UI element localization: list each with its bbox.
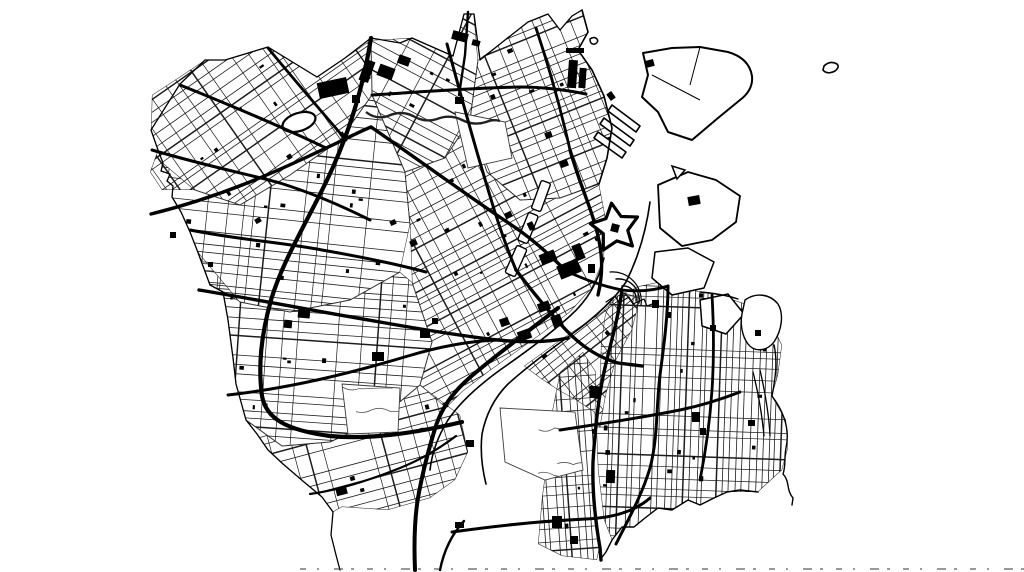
building-block — [606, 470, 615, 483]
building-block — [389, 219, 397, 226]
island-leaf — [823, 62, 838, 72]
building-block — [755, 330, 761, 336]
building-block — [466, 440, 474, 447]
building-block — [692, 412, 700, 422]
islet-north — [590, 38, 598, 45]
building-block — [499, 317, 510, 328]
building-block — [372, 352, 384, 361]
building-block — [652, 300, 659, 308]
building-block — [571, 243, 585, 261]
building-block — [748, 420, 755, 426]
building-block — [284, 320, 293, 329]
building-block — [170, 232, 176, 238]
building-block — [578, 68, 586, 88]
map-layers — [54, 0, 1024, 572]
building-block — [700, 428, 706, 435]
nordhavn — [642, 47, 752, 140]
building-block — [397, 54, 411, 67]
building-block — [606, 91, 616, 101]
map-canvas — [0, 0, 1024, 572]
ne-coastline — [578, 10, 612, 184]
building-block — [254, 217, 262, 224]
building-block — [208, 262, 213, 267]
building-block — [432, 318, 438, 324]
amager-south-edge — [600, 490, 758, 560]
road-west-radial — [190, 230, 426, 272]
road-motorway-ramp — [440, 521, 464, 570]
building-block — [588, 264, 595, 273]
building-block — [567, 60, 578, 89]
pond — [280, 108, 318, 136]
map-viewport — [0, 0, 1024, 572]
building-block — [376, 64, 395, 81]
building-block — [409, 239, 418, 247]
road-top-spike-road — [459, 12, 468, 95]
building-block — [504, 211, 513, 219]
refshaleoen — [658, 172, 740, 246]
building-block — [566, 48, 584, 53]
strand-lagoon — [741, 295, 781, 350]
amager-spit — [753, 370, 770, 436]
road-south-harbor-road — [452, 498, 650, 532]
park-vestre-kirkegaard — [342, 384, 406, 434]
lake — [531, 180, 551, 212]
building-block — [570, 536, 578, 544]
building-block — [544, 131, 553, 139]
holmen-south — [700, 294, 744, 334]
building-block — [471, 39, 480, 47]
